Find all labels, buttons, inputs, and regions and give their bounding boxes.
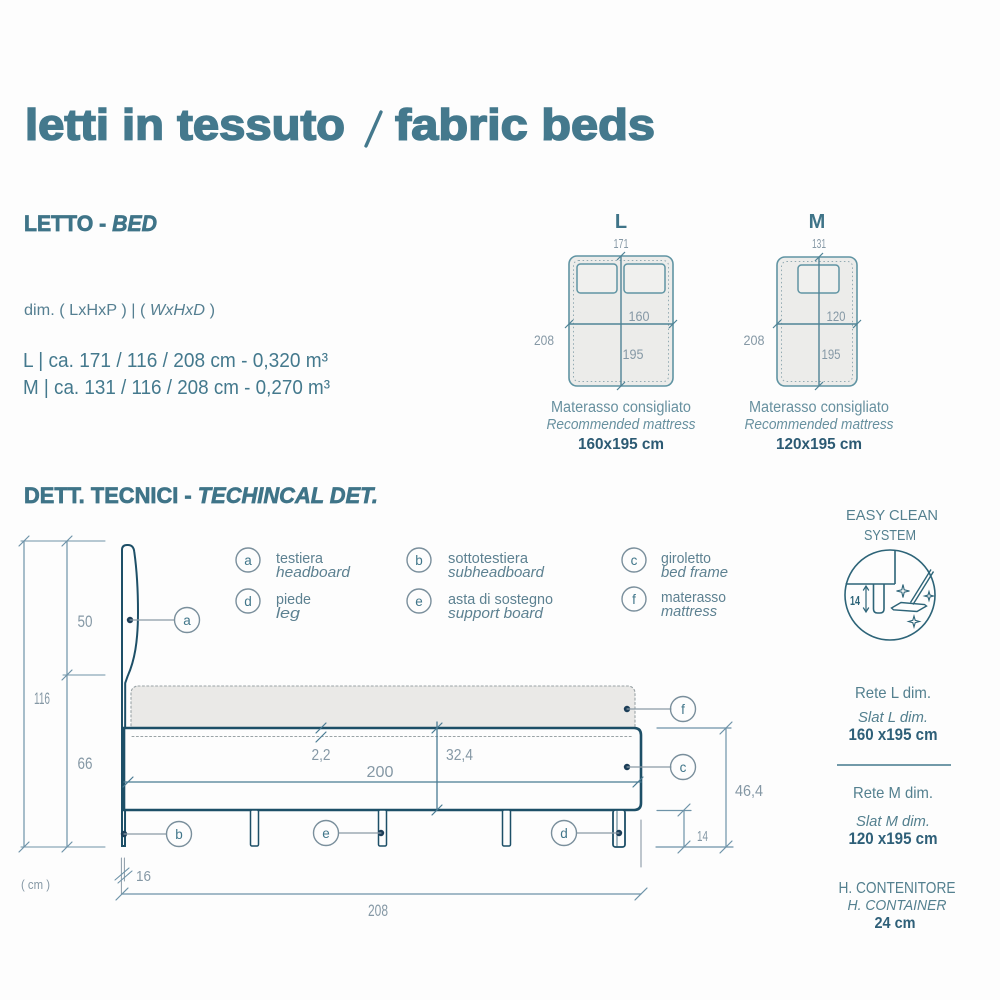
svg-text:M: M [809, 211, 826, 233]
svg-text:66: 66 [78, 755, 93, 773]
svg-text:Rete L dim.: Rete L dim. [855, 685, 931, 702]
svg-text:leg: leg [276, 606, 300, 622]
svg-text:d: d [244, 594, 252, 609]
svg-text:16: 16 [136, 868, 151, 885]
svg-text:160 x195 cm: 160 x195 cm [849, 725, 938, 744]
svg-text:120: 120 [827, 308, 846, 324]
svg-text:DETT. TECNICI - TECHINCAL DET.: DETT. TECNICI - TECHINCAL DET. [24, 483, 378, 508]
svg-text:dim. ( LxHxP ) | ( WxHxD ): dim. ( LxHxP ) | ( WxHxD ) [24, 302, 215, 319]
svg-text:( cm ): ( cm ) [21, 877, 50, 892]
svg-text:Materasso consigliato: Materasso consigliato [749, 399, 889, 416]
svg-text:200: 200 [367, 764, 394, 781]
svg-text:EASY CLEAN: EASY CLEAN [846, 507, 938, 524]
svg-text:Materasso consigliato: Materasso consigliato [551, 399, 691, 416]
svg-text:letti in tessuto: letti in tessuto [25, 101, 345, 150]
svg-text:b: b [175, 827, 183, 842]
svg-text:e: e [415, 594, 423, 609]
svg-text:e: e [322, 826, 330, 841]
svg-text:d: d [560, 826, 568, 841]
svg-text:a: a [183, 613, 191, 628]
svg-text:LETTO - BED: LETTO - BED [24, 211, 157, 236]
svg-text:L | ca. 171 / 116 / 208 cm - 0: L | ca. 171 / 116 / 208 cm - 0,320 m³ [23, 350, 328, 372]
svg-text:headboard: headboard [276, 565, 351, 581]
svg-text:208: 208 [744, 332, 765, 348]
svg-text:171: 171 [614, 237, 629, 251]
svg-text:160: 160 [629, 308, 650, 324]
svg-text:120x195 cm: 120x195 cm [776, 436, 862, 453]
svg-text:46,4: 46,4 [735, 783, 763, 800]
svg-text:24 cm: 24 cm [875, 915, 916, 932]
svg-text:Recommended mattress: Recommended mattress [547, 416, 696, 433]
svg-text:131: 131 [812, 237, 826, 251]
svg-text:f: f [681, 702, 685, 717]
svg-text:subheadboard: subheadboard [448, 565, 545, 581]
svg-text:f: f [632, 592, 636, 607]
svg-text:c: c [680, 760, 687, 775]
svg-text:c: c [631, 553, 638, 568]
svg-text:208: 208 [534, 332, 554, 348]
svg-text:SYSTEM: SYSTEM [864, 527, 916, 544]
svg-text:Recommended mattress: Recommended mattress [745, 416, 894, 433]
svg-text:support board: support board [448, 606, 544, 622]
svg-text:Slat L dim.: Slat L dim. [858, 709, 928, 726]
svg-text:32,4: 32,4 [446, 747, 473, 764]
svg-text:a: a [244, 553, 252, 568]
svg-text:116: 116 [34, 690, 50, 708]
svg-text:208: 208 [368, 902, 388, 920]
svg-text:2,2: 2,2 [312, 747, 331, 764]
svg-text:50: 50 [78, 613, 93, 631]
svg-text:14: 14 [850, 593, 861, 608]
svg-text:b: b [415, 553, 423, 568]
svg-text:120 x195 cm: 120 x195 cm [849, 829, 938, 848]
svg-text:H. CONTAINER: H. CONTAINER [848, 897, 947, 914]
svg-text:bed frame: bed frame [661, 565, 728, 581]
svg-text:Rete M dim.: Rete M dim. [853, 785, 933, 802]
svg-text:L: L [615, 211, 627, 233]
svg-text:195: 195 [822, 346, 841, 362]
svg-text:mattress: mattress [661, 604, 717, 620]
svg-text:fabric beds: fabric beds [395, 101, 655, 150]
svg-text:195: 195 [623, 346, 644, 362]
svg-text:160x195 cm: 160x195 cm [578, 436, 664, 453]
svg-text:Slat M dim.: Slat M dim. [856, 813, 930, 830]
svg-text:14: 14 [697, 828, 708, 845]
svg-text:M | ca. 131 / 116 / 208 cm - 0: M | ca. 131 / 116 / 208 cm - 0,270 m³ [23, 377, 330, 399]
svg-text:H. CONTENITORE: H. CONTENITORE [839, 880, 956, 897]
